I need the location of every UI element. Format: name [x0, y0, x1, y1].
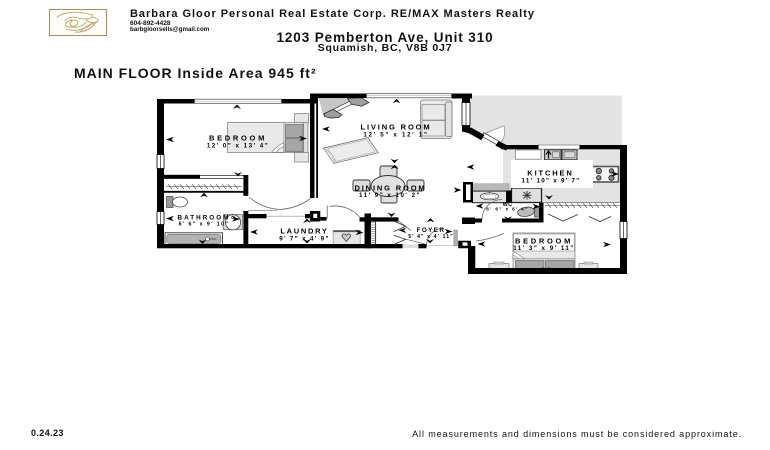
svg-text:11' 3" x 9' 11": 11' 3" x 9' 11": [513, 245, 575, 252]
svg-text:BATHROOM: BATHROOM: [177, 215, 230, 222]
svg-text:9' 7" x 4' 9": 9' 7" x 4' 9": [279, 236, 330, 243]
svg-text:LIVING ROOM: LIVING ROOM: [361, 123, 432, 132]
svg-text:LAUNDRY: LAUNDRY: [280, 227, 328, 236]
svg-text:11' 10" x 9' 7": 11' 10" x 9' 7": [522, 178, 581, 185]
svg-text:KITCHEN: KITCHEN: [527, 169, 573, 178]
svg-text:11' 9" x 10' 2": 11' 9" x 10' 2": [359, 192, 421, 199]
svg-text:BEDROOM: BEDROOM: [209, 134, 267, 143]
svg-text:5' 4" x 4' 11": 5' 4" x 4' 11": [408, 234, 454, 240]
svg-text:6' 6" x 6' 4": 6' 6" x 6' 4": [486, 207, 528, 213]
svg-text:12' 5" x 12' 1": 12' 5" x 12' 1": [363, 132, 428, 139]
svg-text:FOYER: FOYER: [417, 227, 446, 234]
svg-text:6' 6" x 9' 10": 6' 6" x 9' 10": [179, 222, 230, 228]
svg-text:12' 0" x 13' 4": 12' 0" x 13' 4": [207, 143, 269, 150]
